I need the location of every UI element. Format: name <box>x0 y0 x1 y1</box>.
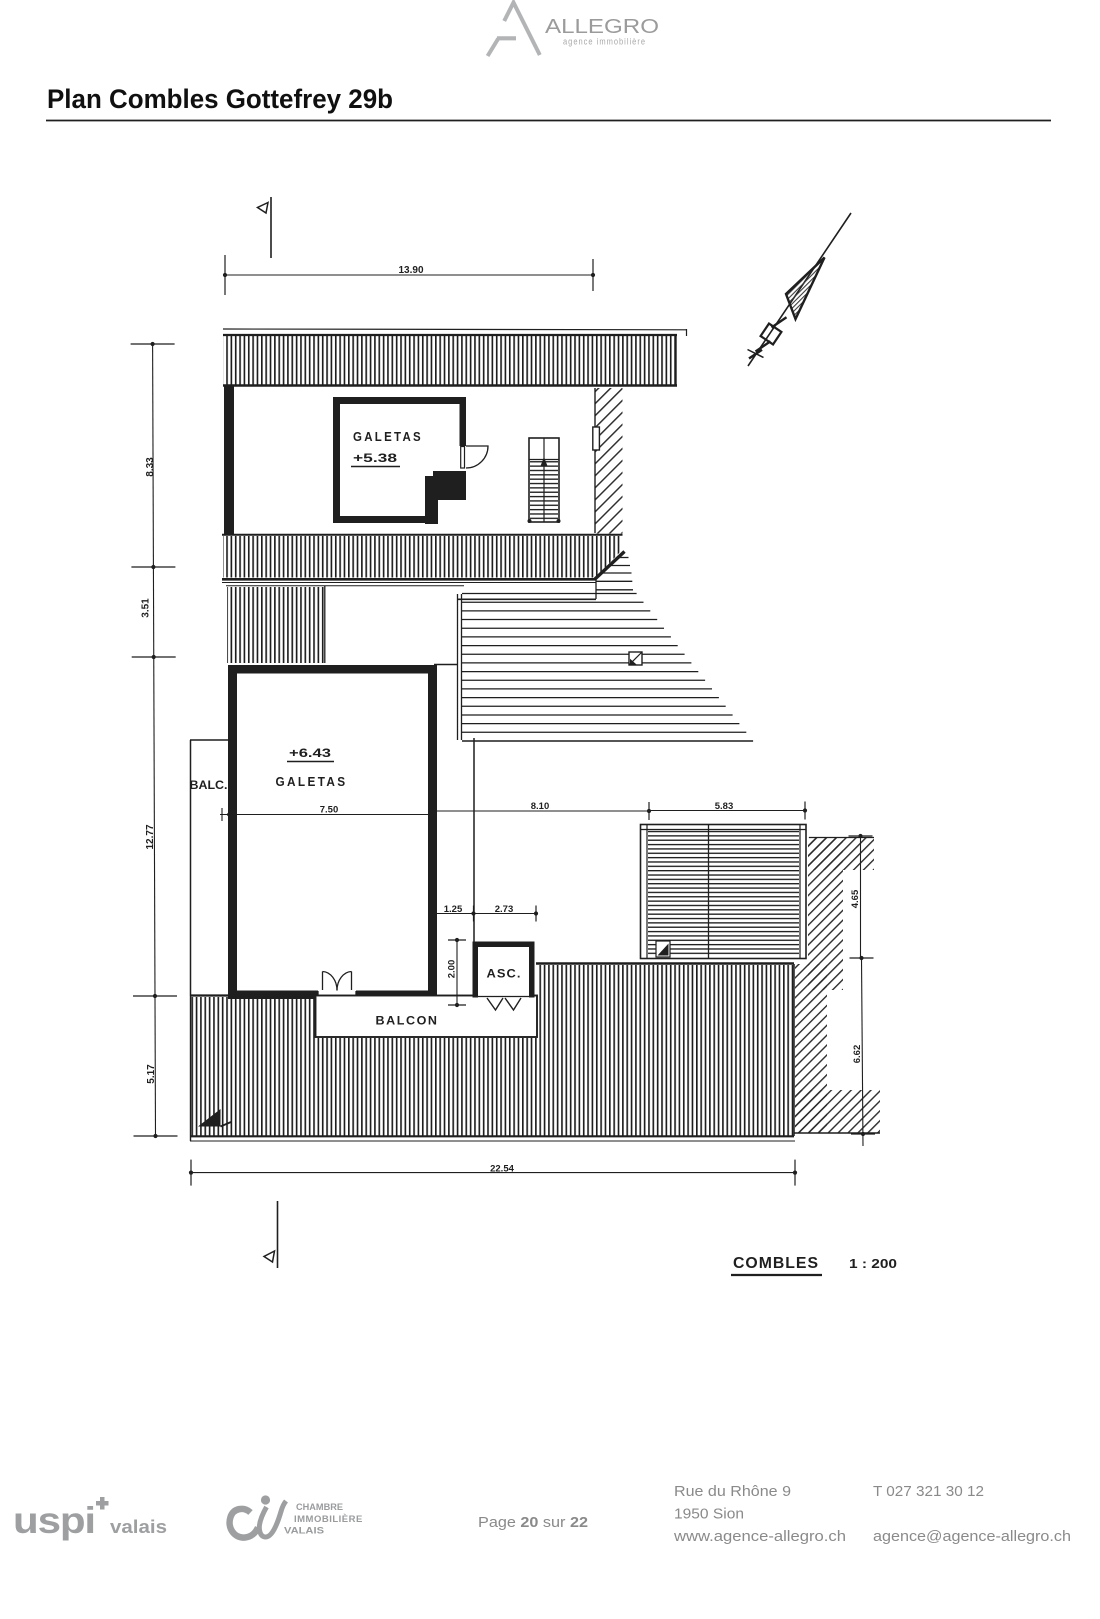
svg-text:3.51: 3.51 <box>141 598 152 618</box>
svg-text:Rue du Rhône 9: Rue du Rhône 9 <box>674 1484 791 1500</box>
svg-text:+5.38: +5.38 <box>353 453 398 465</box>
svg-text:COMBLES: COMBLES <box>733 1255 819 1272</box>
svg-text:BALC.: BALC. <box>190 780 228 792</box>
svg-text:12.77: 12.77 <box>145 824 156 849</box>
svg-text:6.62: 6.62 <box>852 1045 863 1064</box>
svg-text:IMMOBILIÈRE: IMMOBILIÈRE <box>294 1514 363 1525</box>
svg-text:VALAIS: VALAIS <box>284 1526 324 1537</box>
svg-text:Plan Combles Gottefrey 29b: Plan Combles Gottefrey 29b <box>47 84 393 114</box>
svg-text:uspi: uspi <box>13 1500 95 1541</box>
svg-text:ALLEGRO: ALLEGRO <box>545 16 659 38</box>
svg-text:T 027 321 30 12: T 027 321 30 12 <box>873 1484 984 1500</box>
svg-text:ASC.: ASC. <box>487 967 522 981</box>
svg-text:5.83: 5.83 <box>715 801 734 812</box>
svg-text:valais: valais <box>110 1517 167 1537</box>
svg-text:GALETAS: GALETAS <box>353 430 423 444</box>
svg-text:1 : 200: 1 : 200 <box>849 1257 897 1271</box>
svg-text:GALETAS: GALETAS <box>276 775 348 789</box>
svg-text:CHAMBRE: CHAMBRE <box>296 1502 343 1513</box>
svg-text:1950 Sion: 1950 Sion <box>674 1507 744 1523</box>
svg-text:www.agence-allegro.ch: www.agence-allegro.ch <box>673 1529 846 1545</box>
svg-text:BALCON: BALCON <box>376 1014 439 1028</box>
svg-text:8.33: 8.33 <box>145 457 156 477</box>
svg-text:1.25: 1.25 <box>444 904 463 915</box>
svg-text:22.54: 22.54 <box>490 1164 514 1175</box>
svg-text:2.73: 2.73 <box>495 904 514 915</box>
svg-text:Page 20 sur 22: Page 20 sur 22 <box>478 1514 588 1531</box>
svg-text:7.50: 7.50 <box>320 805 339 816</box>
svg-text:agence@agence-allegro.ch: agence@agence-allegro.ch <box>873 1529 1071 1545</box>
svg-text:5.17: 5.17 <box>146 1064 157 1084</box>
svg-text:agence immobilière: agence immobilière <box>563 37 646 47</box>
svg-text:+6.43: +6.43 <box>289 748 331 760</box>
svg-text:13.90: 13.90 <box>398 265 423 276</box>
svg-text:2.00: 2.00 <box>447 960 458 979</box>
svg-text:4.65: 4.65 <box>850 889 861 908</box>
svg-text:8.10: 8.10 <box>531 801 550 812</box>
